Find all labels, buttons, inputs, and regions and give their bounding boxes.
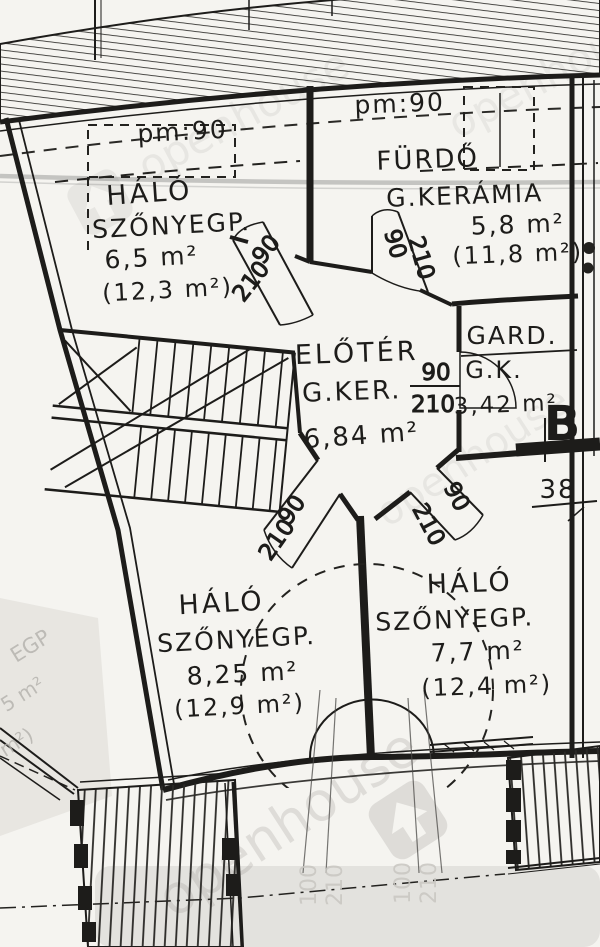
room-area: 7,7 m² — [430, 635, 525, 667]
dimension-38: 38 — [532, 475, 597, 521]
room-name: GARD. — [466, 321, 557, 350]
section-marker-b: B — [544, 396, 581, 452]
room-area-gross: (11,8 m²) — [452, 238, 584, 271]
parapet-height-label: pm:90 — [137, 115, 229, 149]
room-label-gard: GARD. G.K. 3,42 m² — [453, 321, 558, 420]
door-height-label: 210 — [402, 233, 439, 282]
stair-treads-lower — [134, 426, 276, 511]
ghost-door-width: 100 — [297, 864, 322, 906]
pipe-symbol — [583, 263, 594, 274]
room-name: FÜRDŐ — [376, 141, 480, 177]
room-floor: G.KER. — [302, 375, 402, 408]
room-floor: G.KERÁMIA — [386, 178, 544, 212]
room-area: 8,25 m² — [186, 656, 299, 691]
roof-hatch-band — [0, 0, 600, 156]
room-name: HÁLÓ — [178, 585, 266, 621]
wall-bedroom-divider — [360, 516, 371, 758]
room-name: HÁLÓ — [105, 174, 193, 212]
door-height-label: 210 — [411, 392, 455, 418]
parapet-height-label: pm:90 — [354, 87, 445, 119]
floor-plan-page: openhouse openhouse openhouse openhouse — [0, 0, 600, 947]
room-area: 3,42 m² — [453, 390, 558, 420]
ghost-door-height: 210 — [417, 862, 442, 904]
stairs — [45, 330, 295, 512]
ghost-door-height: 210 — [323, 864, 348, 906]
room-area: 5,8 m² — [470, 208, 565, 240]
room-area-gross: (12,3 m²) — [102, 273, 234, 308]
pipe-symbol — [583, 242, 595, 254]
plumbing-fixtures — [583, 242, 596, 274]
balcony-deck — [508, 746, 600, 870]
door-height-label: 210 — [406, 499, 450, 550]
door-width-label: 90 — [421, 360, 450, 386]
room-name: HÁLÓ — [426, 566, 513, 601]
room-floor: SZŐNYEGP. — [375, 601, 535, 637]
room-floor: SZŐNYEGP. — [156, 620, 316, 658]
room-area: 6,84 m² — [303, 417, 421, 455]
stair-landing-marks — [59, 341, 137, 412]
floor-plan-drawing: openhouse openhouse openhouse openhouse — [0, 0, 600, 947]
room-area-gross: (12,9 m²) — [174, 689, 306, 724]
door-nw: 90 210 — [228, 222, 313, 325]
room-label-halo-nw: HÁLÓ SZŐNYEGP. 6,5 m² (12,3 m²) — [91, 174, 251, 307]
room-label-eloter: ELŐTÉR G.KER. 6,84 m² — [294, 335, 420, 455]
room-area-gross: (12,4 m²) — [421, 670, 553, 703]
room-label-halo-se: HÁLÓ SZŐNYEGP. 7,7 m² (12,4 m²) — [375, 566, 553, 703]
room-name: ELŐTÉR — [294, 335, 419, 371]
room-floor: G.K. — [465, 356, 523, 384]
balcony-deck — [78, 780, 243, 947]
door-sw: 90 210 — [254, 460, 340, 568]
room-label-halo-sw: HÁLÓ SZŐNYEGP. 8,25 m² (12,9 m²) — [156, 585, 316, 724]
wall-furdo-gard — [452, 296, 578, 304]
room-area: 6,5 m² — [104, 241, 199, 275]
ghost-door-width: 100 — [391, 862, 416, 904]
door-furdo: 90 210 — [372, 210, 439, 292]
dimension-value: 38 — [539, 475, 576, 505]
